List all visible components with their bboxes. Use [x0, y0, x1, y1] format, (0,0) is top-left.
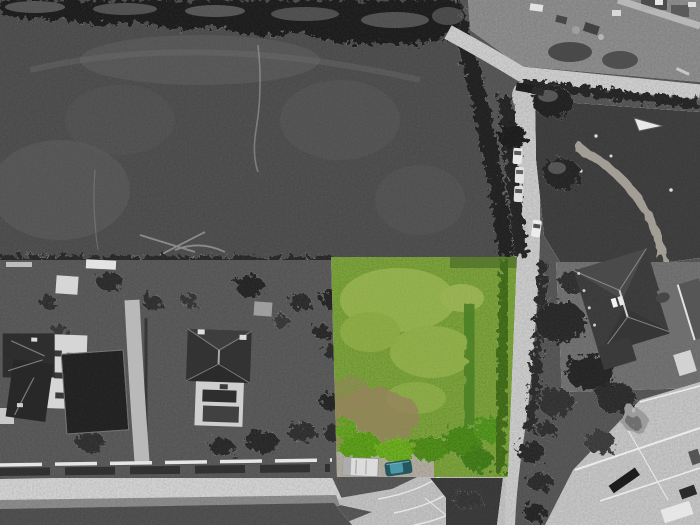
parked-car [512, 148, 522, 165]
parked-car [515, 167, 525, 183]
highlighted-plot [326, 257, 517, 478]
house-2-roof [186, 329, 252, 383]
parked-car [514, 186, 524, 202]
light-tree-core [627, 416, 641, 428]
white-truck [343, 457, 379, 476]
garden-bed [61, 350, 128, 434]
house-2-extension [194, 381, 244, 427]
driveway [132, 300, 142, 462]
plot-dark-streak [466, 302, 473, 424]
left-gardens [0, 259, 344, 478]
front-hedge [0, 468, 330, 472]
plot-hedge-right [498, 260, 506, 474]
aerial-photo [0, 0, 700, 525]
